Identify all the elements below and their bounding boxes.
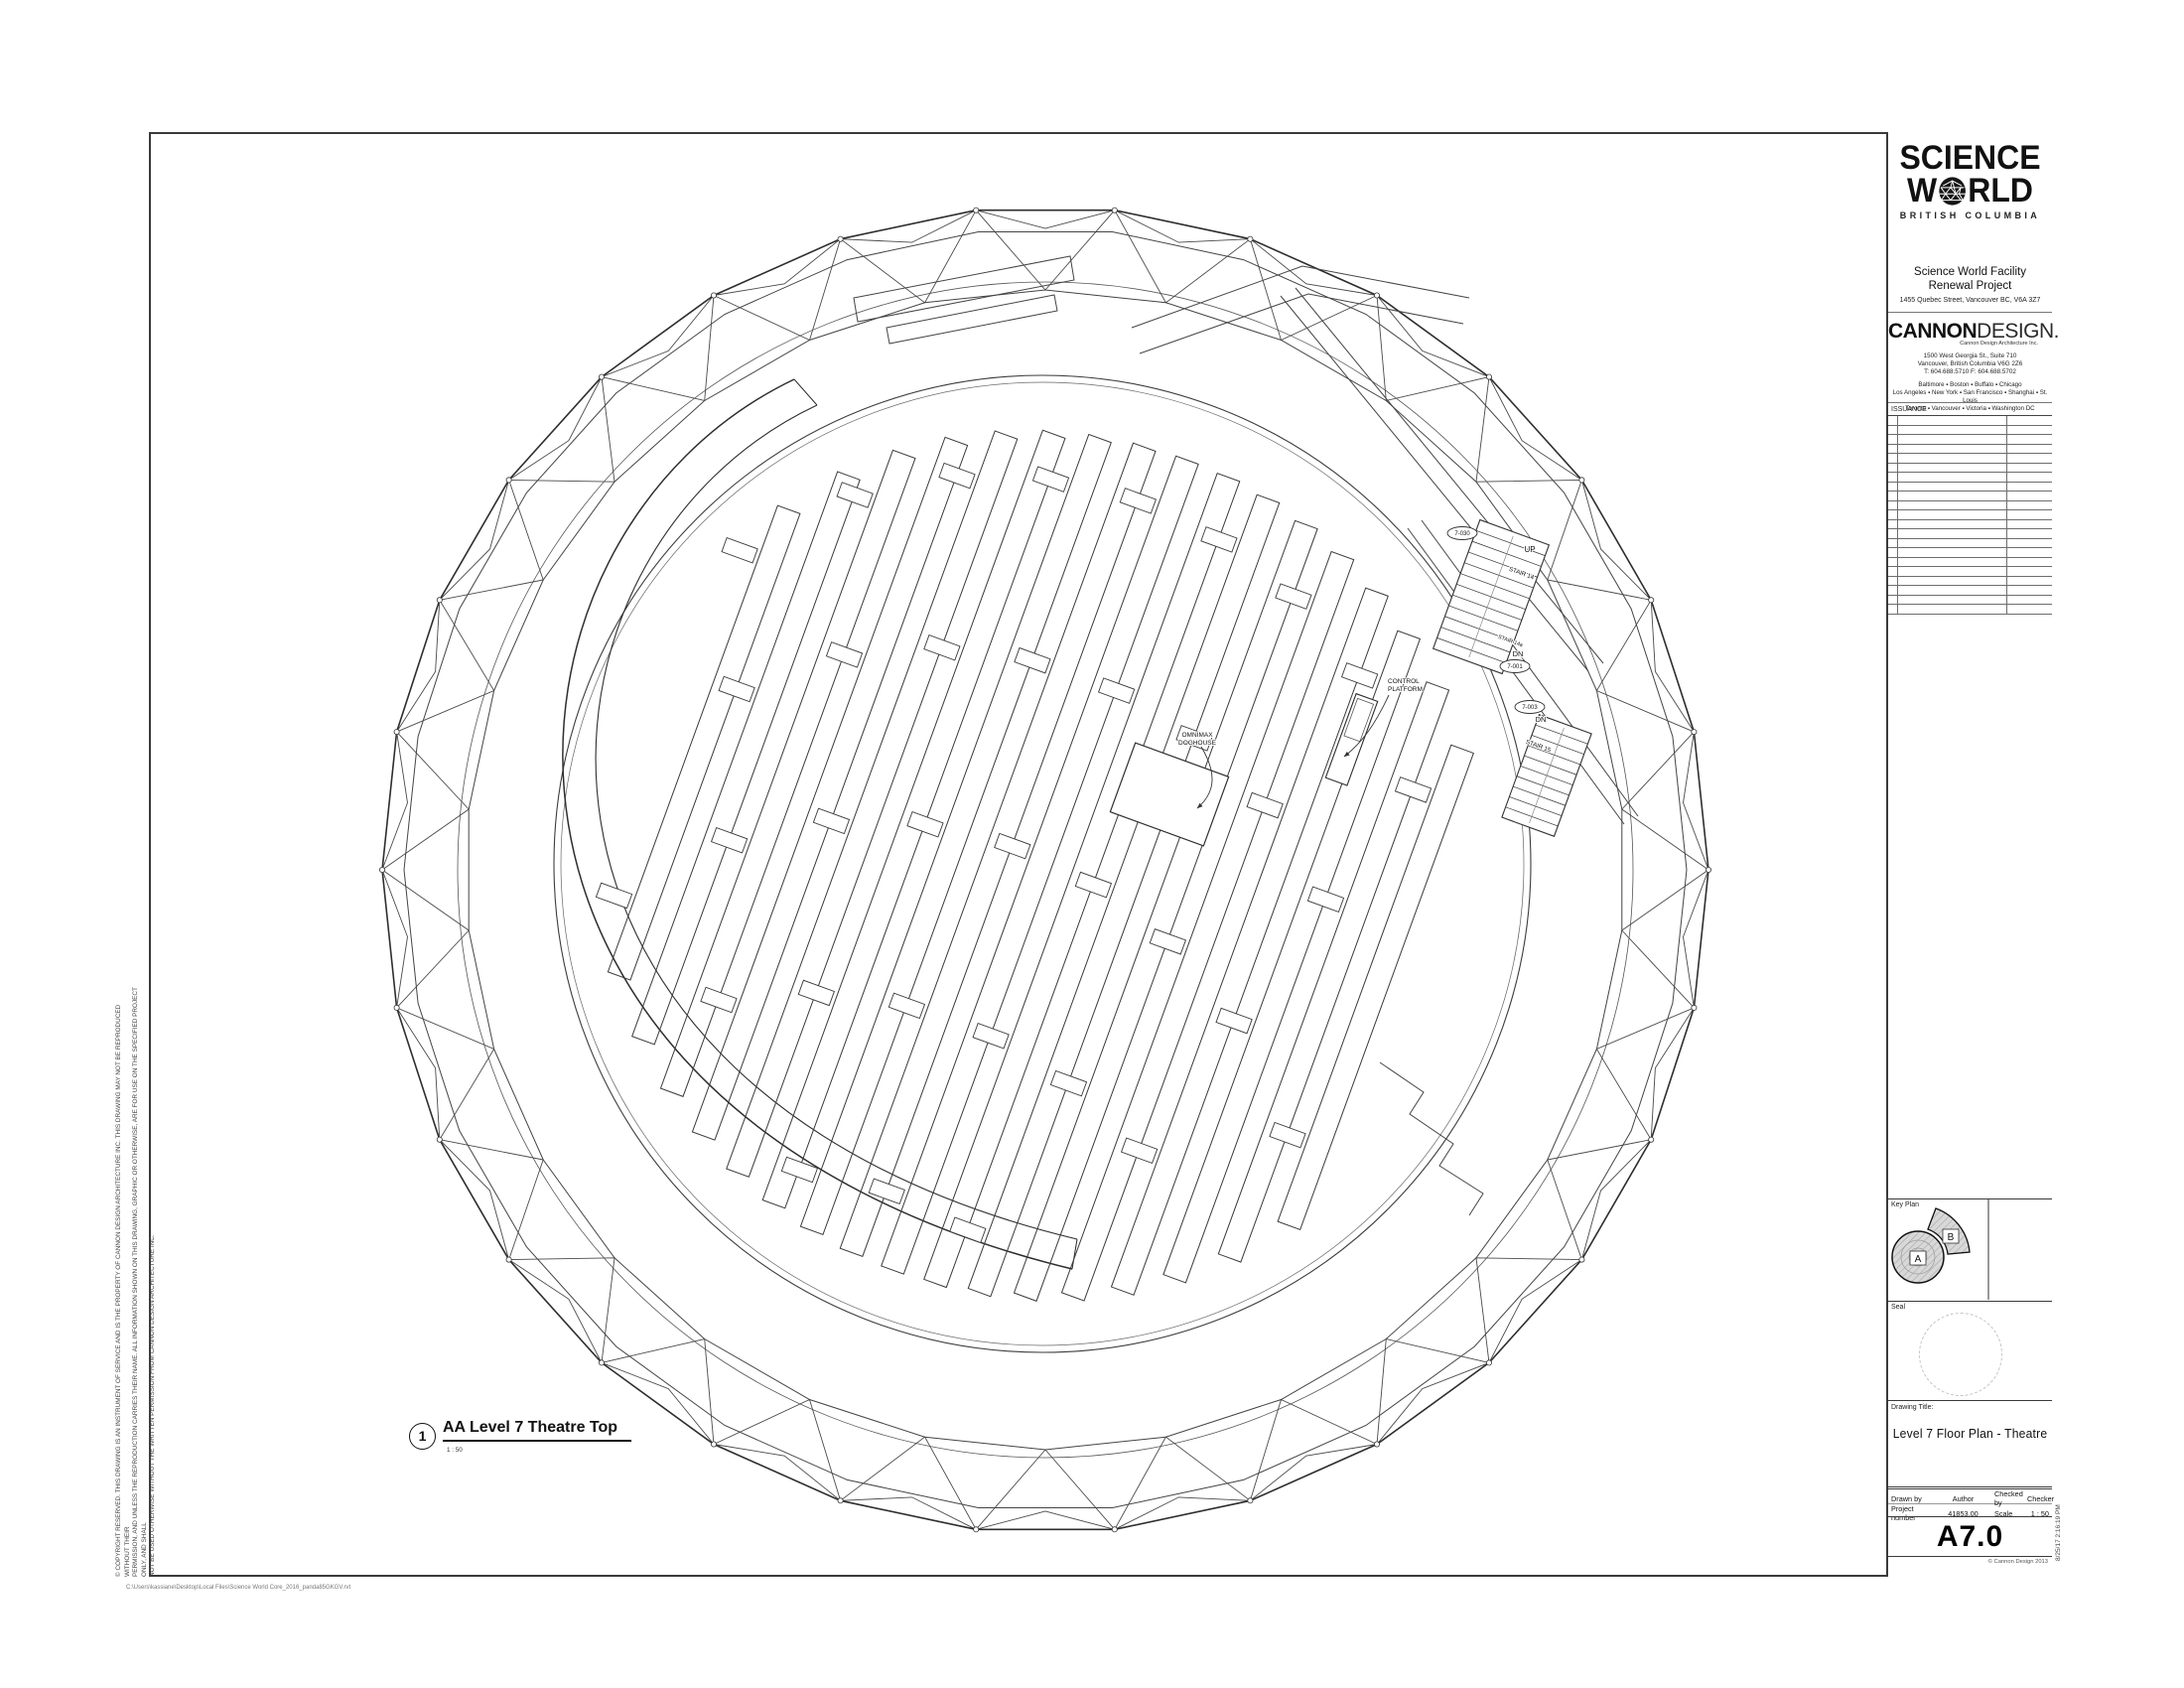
key-plan-section: Key Plan AB [1888, 1198, 2052, 1301]
architect-block: CANNONDESIGN. Cannon Design Architecture… [1888, 313, 2052, 402]
drawn-by-label: Drawn by [1888, 1494, 1935, 1503]
seal-label: Seal [1891, 1304, 1905, 1311]
issuance-row [1888, 520, 2052, 530]
issuance-row [1888, 558, 2052, 568]
geodesic-dome-icon [1938, 176, 1967, 207]
omnimax-doghouse [1110, 743, 1228, 846]
issuance-row [1888, 596, 2052, 606]
checked-by-label: Checked by [1991, 1489, 2027, 1507]
issuance-row [1888, 539, 2052, 549]
issuance-row [1888, 501, 2052, 511]
theatre-bowl-wall [554, 375, 1531, 1352]
drawn-by-value: Author [1935, 1494, 1991, 1503]
side-note-line1: © COPYRIGHT RESERVED. THIS DRAWING IS AN… [115, 983, 132, 1577]
logo-word-science: SCIENCE [1893, 142, 2047, 175]
dome-truss-ring [382, 211, 1708, 1530]
issuance-row [1888, 426, 2052, 436]
issuance-label: ISSUANCE [1888, 403, 2052, 415]
room-tag-7-030: 7-030 [1447, 527, 1477, 540]
issuance-row [1888, 473, 2052, 483]
stair14-dn-label: DN [1513, 649, 1524, 658]
architect-address-line1: 1500 West Georgia St., Suite 710 [1888, 352, 2052, 360]
checked-by-value: Checker [2027, 1494, 2052, 1503]
cannon-logo-bold: CANNON [1888, 320, 1977, 343]
science-world-logo: SCIENCE W RLD BRITISH COLUMBIA [1888, 132, 2052, 266]
sheet-number-section: A7.0 [1888, 1516, 2052, 1557]
stair15-dn-label: DN [1536, 715, 1547, 724]
side-note-line2: PERMISSION, AND UNLESS THE REPRODUCTION … [132, 983, 149, 1577]
logo-region-text: BRITISH COLUMBIA [1888, 211, 2052, 220]
issuance-row [1888, 445, 2052, 455]
svg-text:DN: DN [1536, 715, 1547, 724]
print-datetime-stamp: 8/25/17 2:16:19 PM [2055, 1481, 2062, 1561]
architect-phone-fax: T: 604.688.5710 F: 604.688.5702 [1888, 368, 2052, 376]
logo-rld: RLD [1968, 175, 2033, 208]
floor-plan-drawing: 7-0307-0017-003CONTROLPLATFORMOMNIMAXDOG… [149, 132, 1886, 1577]
title-block: SCIENCE W RLD BRITISH COLUMBIA [1886, 132, 2050, 1577]
control-platform-label: CONTROLPLATFORM [1388, 678, 1423, 693]
key-plan-label: Key Plan [1891, 1201, 1919, 1208]
project-name-line2: Renewal Project [1888, 280, 2052, 294]
side-note-line3: NOT BE USED OTHERWISE WITHOUT THE WRITTE… [149, 983, 158, 1577]
svg-text:UP: UP [1524, 545, 1535, 554]
svg-text:PLATFORM: PLATFORM [1388, 686, 1423, 693]
drawing-title-section: Drawing Title: Level 7 Floor Plan - Thea… [1888, 1400, 2052, 1486]
issuance-row [1888, 483, 2052, 492]
architect-offices-line1: Baltimore ▪ Boston ▪ Buffalo ▪ Chicago [1888, 381, 2052, 389]
issuance-row [1888, 464, 2052, 474]
svg-text:DN: DN [1513, 649, 1524, 658]
key-plan-zone-b-label: B [1948, 1232, 1955, 1243]
sheet-number: A7.0 [1937, 1520, 2003, 1554]
cannondesign-logo: CANNONDESIGN. [1888, 321, 2052, 342]
stair14-up-label: UP [1524, 545, 1535, 554]
drawing-title-label: Drawing Title: [1891, 1404, 1933, 1411]
svg-text:7-003: 7-003 [1522, 705, 1538, 711]
issuance-row [1888, 492, 2052, 501]
svg-text:7-001: 7-001 [1507, 664, 1523, 670]
issuance-row [1888, 454, 2052, 464]
issuance-row [1888, 586, 2052, 596]
issuance-row [1888, 548, 2052, 558]
omnimax-doghouse-label: OMNIMAXDOGHOUSE [1178, 732, 1217, 747]
drawing-title: Level 7 Floor Plan - Theatre [1890, 1427, 2049, 1441]
drawn-checked-row: Drawn by Author Checked by Checker [1888, 1489, 2052, 1504]
architect-address: 1500 West Georgia St., Suite 710 Vancouv… [1888, 352, 2052, 376]
stair-14 [1433, 520, 1550, 674]
theatre-seating-tiers [511, 321, 1535, 1396]
issuance-row [1888, 435, 2052, 445]
sheet-info-section: Drawn by Author Checked by Checker Proje… [1888, 1486, 2052, 1516]
svg-text:CONTROL: CONTROL [1388, 678, 1420, 685]
file-path-stamp: C:\Users\kassiane\Desktop\Local Files\Sc… [126, 1585, 350, 1591]
viewport-number-bubble: 1 [409, 1423, 436, 1450]
issuance-row [1888, 529, 2052, 539]
issuance-table [1888, 415, 2052, 615]
issuance-row [1888, 510, 2052, 520]
drawing-sheet: 7-0307-0017-003CONTROLPLATFORMOMNIMAXDOG… [0, 0, 2184, 1688]
architect-address-line2: Vancouver, British Columbia V6G 2Z6 [1888, 360, 2052, 368]
svg-text:DOGHOUSE: DOGHOUSE [1178, 740, 1217, 747]
issuance-row [1888, 605, 2052, 615]
room-tag-7-001: 7-001 [1500, 660, 1530, 673]
project-address: 1455 Quebec Street, Vancouver BC, V6A 3Z… [1888, 297, 2052, 304]
project-name-line1: Science World Facility [1888, 266, 2052, 280]
issuance-row [1888, 577, 2052, 587]
svg-text:OMNIMAX: OMNIMAX [1181, 732, 1213, 739]
issuance-section: ISSUANCE [1888, 402, 2052, 626]
logo-word-world: W RLD [1893, 175, 2047, 208]
viewport-title: AA Level 7 Theatre Top [443, 1419, 631, 1442]
room-tag-7-003: 7-003 [1515, 701, 1545, 714]
key-plan-diagram: AB [1888, 1199, 2052, 1300]
key-plan-zone-a-label: A [1915, 1254, 1922, 1265]
cannon-logo-light: DESIGN. [1977, 320, 2059, 343]
logo-w: W [1907, 175, 1937, 208]
issuance-row [1888, 567, 2052, 577]
seal-section: Seal [1888, 1301, 2052, 1400]
issuance-row [1888, 416, 2052, 426]
viewport-scale: 1 : 50 [447, 1447, 463, 1454]
seal-placeholder-circle [1919, 1313, 2002, 1396]
copyright-side-note: © COPYRIGHT RESERVED. THIS DRAWING IS AN… [115, 983, 158, 1577]
svg-text:7-030: 7-030 [1454, 531, 1470, 537]
control-platform [1325, 694, 1377, 785]
copyright-stamp: © Cannon Design 2013 [1888, 1559, 2052, 1575]
project-identification: Science World Facility Renewal Project 1… [1888, 266, 2052, 313]
